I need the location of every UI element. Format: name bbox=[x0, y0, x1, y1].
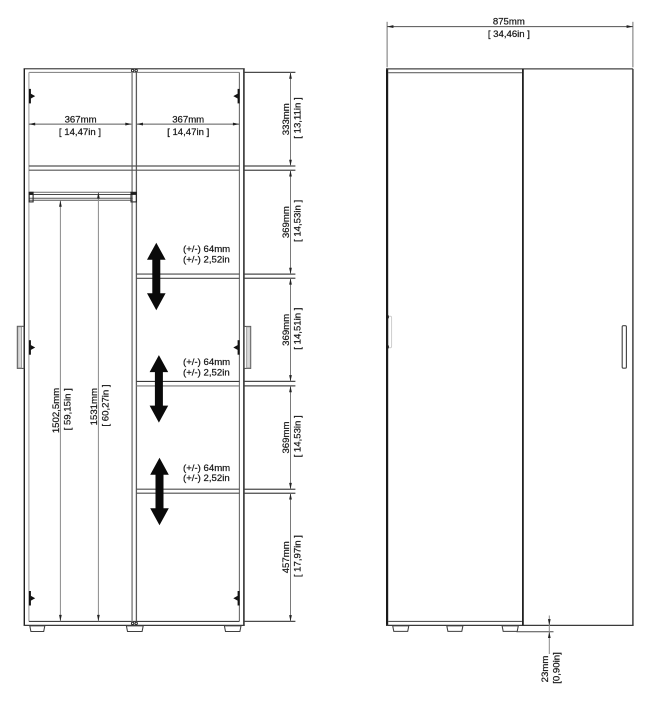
svg-text:[ 14,47in ]: [ 14,47in ] bbox=[167, 127, 209, 138]
svg-text:875mm: 875mm bbox=[493, 16, 525, 27]
svg-text:[ 14,51in ]: [ 14,51in ] bbox=[293, 308, 304, 350]
svg-text:23mm: 23mm bbox=[540, 656, 551, 683]
svg-text:369mm: 369mm bbox=[281, 206, 292, 238]
svg-text:369mm: 369mm bbox=[281, 422, 292, 454]
svg-text:(+/-) 64mm: (+/-) 64mm bbox=[183, 357, 230, 368]
svg-text:[ 60,27in ]: [ 60,27in ] bbox=[101, 384, 112, 426]
svg-text:1531mm: 1531mm bbox=[89, 388, 100, 425]
svg-text:[ 59,15in ]: [ 59,15in ] bbox=[63, 388, 74, 430]
svg-text:367mm: 367mm bbox=[65, 114, 97, 125]
svg-text:[ 34,46in ]: [ 34,46in ] bbox=[488, 29, 530, 40]
svg-text:1502,5mm: 1502,5mm bbox=[51, 388, 62, 433]
svg-text:[ 14,53in ]: [ 14,53in ] bbox=[293, 415, 304, 457]
svg-text:[ 14,47in ]: [ 14,47in ] bbox=[59, 127, 101, 138]
svg-text:367mm: 367mm bbox=[172, 114, 204, 125]
svg-text:333mm: 333mm bbox=[281, 103, 292, 135]
svg-text:457mm: 457mm bbox=[281, 541, 292, 573]
svg-text:(+/-) 2,52in: (+/-) 2,52in bbox=[183, 368, 230, 379]
svg-text:(+/-) 64mm: (+/-) 64mm bbox=[183, 244, 230, 255]
svg-text:[ 14,53in ]: [ 14,53in ] bbox=[293, 200, 304, 242]
svg-text:[0,90in]: [0,90in] bbox=[551, 652, 562, 683]
svg-text:(+/-) 64mm: (+/-) 64mm bbox=[183, 463, 230, 474]
svg-text:[ 13,11in ]: [ 13,11in ] bbox=[293, 97, 304, 138]
svg-text:369mm: 369mm bbox=[281, 314, 292, 346]
svg-text:(+/-) 2,52in: (+/-) 2,52in bbox=[183, 473, 230, 484]
svg-text:[ 17,97in ]: [ 17,97in ] bbox=[293, 535, 304, 577]
svg-text:(+/-) 2,52in: (+/-) 2,52in bbox=[183, 254, 230, 265]
